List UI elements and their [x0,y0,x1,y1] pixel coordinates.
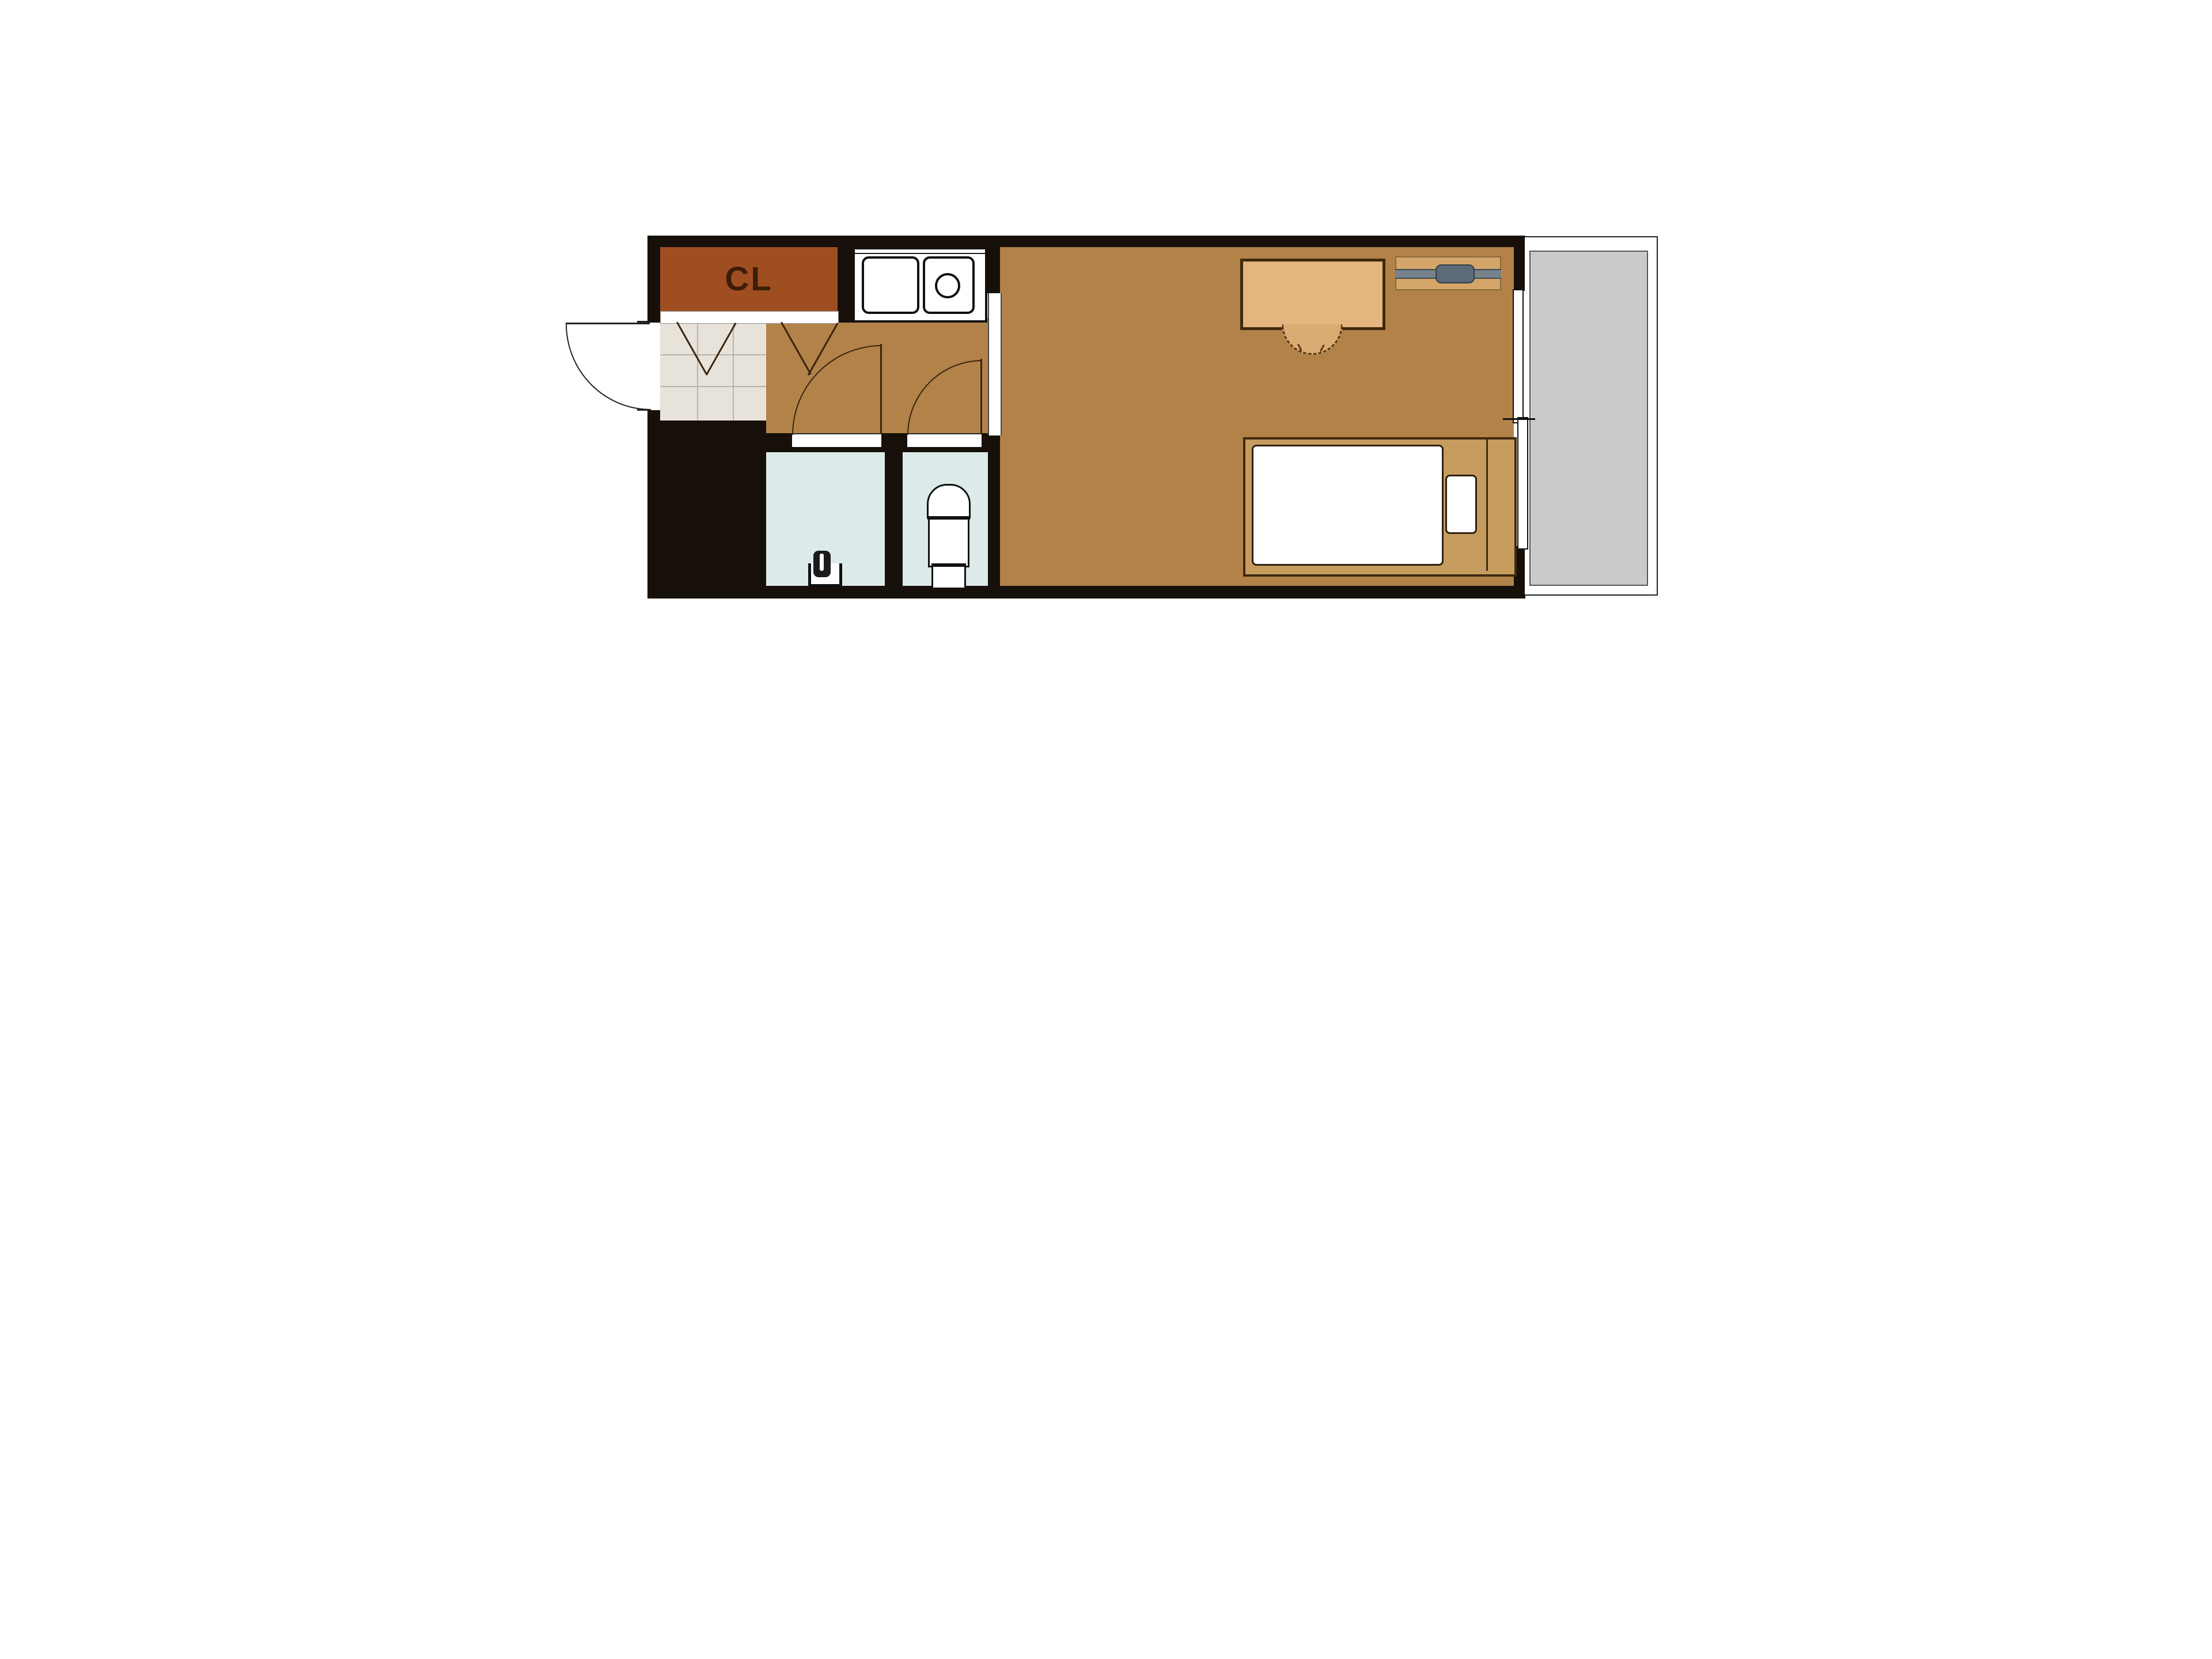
tile-grid-line [660,386,766,387]
entrance-tile [660,322,766,421]
entrance-door-arc [566,324,651,410]
bed-headboard-line [1486,438,1488,571]
mattress [1252,445,1444,566]
closet-label: CL [725,260,772,298]
wall-corner-block [647,421,766,599]
faucet-hole-icon [935,273,960,298]
wall-top [647,236,1525,247]
air-conditioner-fan [1435,264,1475,283]
faucet-fixture-icon [813,551,831,577]
wall-wet-top-right [982,433,1000,452]
toilet-tank [928,516,969,567]
tile-grid-line [733,322,734,421]
toilet-door-sill [907,433,982,447]
bathroom-door-sill [792,433,881,447]
toilet-base [931,563,966,589]
wall-kitchen-upper [986,247,1000,293]
tile-grid-line [697,322,698,421]
faucet-highlight [820,554,824,571]
pillow [1445,475,1477,534]
sliding-door-meeting-tick [1503,418,1535,420]
wall-right-upper [1514,236,1525,291]
closet: CL [660,247,838,311]
wall-kitchen-lower [988,435,1000,586]
sink-basin [862,256,919,314]
wall-closet-right [838,247,853,323]
counter-edge-line [855,253,985,254]
wall-left-upper [647,236,660,323]
balcony-deck [1529,251,1648,586]
air-conditioner [1395,256,1501,290]
floor-plan: CL [553,0,1659,829]
desk [1240,259,1385,330]
kitchen-room-opening [988,293,1002,435]
wall-wet-top-left [766,433,792,452]
wall-bath-toilet [885,446,903,586]
closet-sliding-doors [660,311,839,324]
balcony [1525,236,1658,596]
tile-grid-line [660,354,766,355]
kitchen-sink-counter [853,247,987,323]
toilet-bowl [927,484,971,521]
sliding-glass-door-pane [1517,417,1528,550]
wall-bottom [647,586,1525,599]
sliding-glass-door-pane [1513,289,1524,423]
